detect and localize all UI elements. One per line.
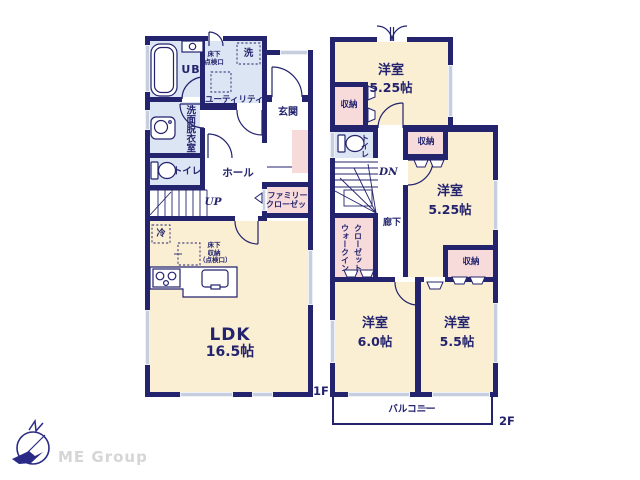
room-label-bed2-size: 5.25帖 (420, 203, 480, 218)
label-fridge: 冷 (152, 229, 170, 240)
room-label-ldk-size: 16.5帖 (195, 344, 265, 361)
stairs-up (150, 190, 207, 216)
room-label-storage2: 収納 (410, 137, 442, 147)
label-floor-hatch-line2: 点検口 (204, 58, 224, 66)
balcony-doors-arcs (377, 26, 407, 41)
room-label-family-closet: ファミリー クローゼット (266, 191, 309, 210)
toilet-door-arc (208, 134, 232, 158)
room-label-bed1: 洋室 (361, 63, 421, 78)
stairs-down (335, 162, 378, 213)
room-label-ub: UB (178, 64, 204, 77)
room-label-genkan: 玄関 (273, 107, 303, 119)
label-floor-storage-line3: （点検口） (199, 256, 232, 264)
bath-door-arc (182, 77, 204, 99)
room-label-ldk: LDK (200, 325, 260, 345)
room-label-wic-col1: ウォークイン (340, 220, 349, 276)
room-label-hallway: 廊下 (380, 218, 404, 229)
back-door-arc (209, 32, 223, 46)
room-label-toilet2: トイレ (360, 133, 369, 158)
label-stairs-up: UP (203, 196, 223, 208)
room-label-wic-col2: クローゼット (353, 220, 362, 276)
bathtub-icon (151, 44, 177, 96)
compass-logo (10, 418, 58, 472)
floor-hatch-outline (211, 72, 231, 92)
floor1-tag: 1F (313, 384, 329, 398)
floorplan-canvas: UB ユーティリティ 洗 床下 点検口 玄関 洗面脱衣室 トイレ ホール ファミ… (0, 0, 640, 480)
label-family-closet-line1: ファミリー (268, 191, 308, 200)
utility-door-arc (237, 110, 262, 135)
room-label-bed1-size: 5.25帖 (361, 81, 421, 96)
label-stairs-dn: DN (379, 166, 397, 178)
closet-arrow (255, 193, 262, 203)
floor-1-plan: UB ユーティリティ 洗 床下 点検口 玄関 洗面脱衣室 トイレ ホール ファミ… (145, 36, 313, 397)
room-label-bed2: 洋室 (420, 184, 480, 199)
room-label-utility: ユーティリティ (205, 95, 262, 105)
label-floor-hatch: 床下 点検口 (202, 51, 226, 66)
label-washer: 洗 (237, 48, 260, 59)
bed1-door-arc (378, 103, 403, 128)
label-balcony: バルコニー (384, 404, 440, 415)
room-label-bed4: 洋室 (427, 316, 487, 331)
company-name: ME Group (58, 448, 148, 466)
front-door-arc (272, 67, 302, 97)
washbasin-icon (151, 117, 175, 139)
kitchen-counter-icon (150, 267, 237, 297)
floor-2-plan: 洋室 5.25帖 収納 トイレ DN 収納 洋室 5.25帖 ウォークイン クロ… (330, 26, 498, 429)
label-floor-storage: 床下 収納 （点検口） (199, 242, 229, 265)
room-label-bed3: 洋室 (345, 316, 405, 331)
label-family-closet-line2: クローゼット (266, 200, 314, 209)
room-label-storage3: 収納 (454, 257, 488, 267)
north-mark (29, 421, 43, 431)
room-label-bed4-size: 5.5帖 (427, 335, 487, 350)
floor2-tag: 2F (499, 414, 515, 428)
bed3-door-arc (395, 282, 418, 305)
bath-counter-icon (182, 41, 203, 52)
room-label-washroom: 洗面脱衣室 (184, 102, 195, 156)
bird-icon (12, 451, 43, 464)
room-label-hall: ホール (219, 167, 257, 179)
ldk-door-arc (235, 221, 258, 244)
room-label-toilet1: トイレ (171, 166, 203, 177)
room-label-bed3-size: 6.0帖 (345, 335, 405, 350)
room-label-storage1: 収納 (335, 100, 363, 110)
